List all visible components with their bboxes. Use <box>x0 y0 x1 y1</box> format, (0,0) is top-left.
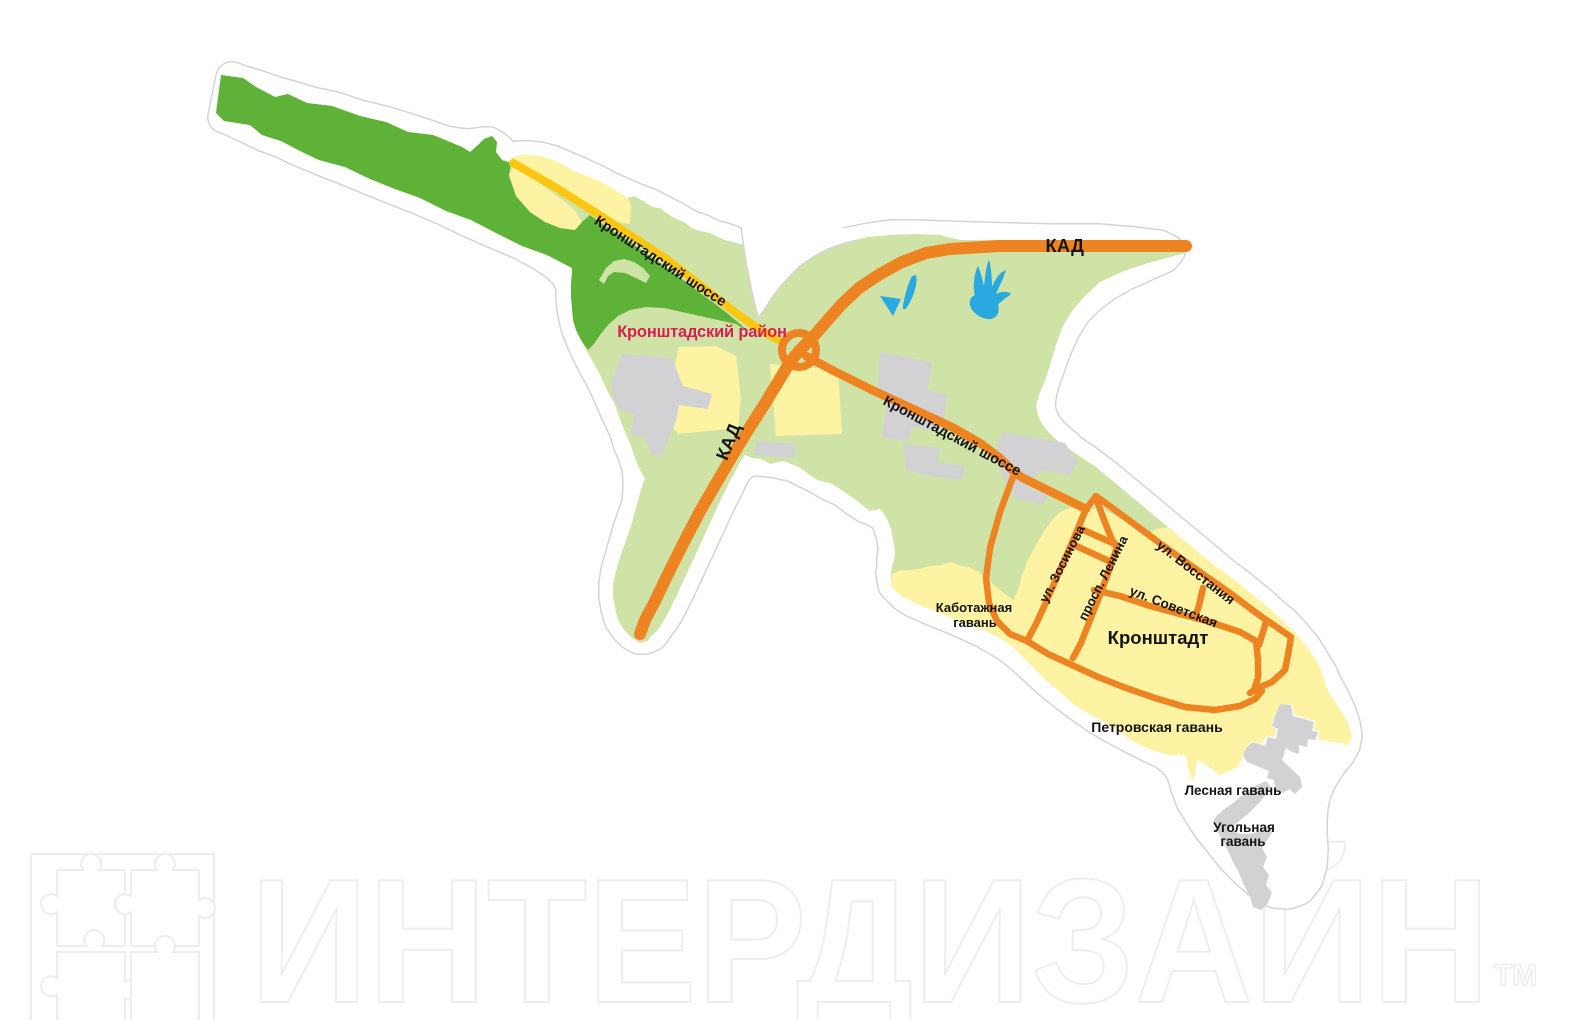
svg-text:Кронштадт: Кронштадт <box>1108 627 1209 648</box>
svg-text:Угольная: Угольная <box>1213 820 1275 835</box>
svg-text:Кронштадский район: Кронштадский район <box>617 323 787 341</box>
svg-text:гавань: гавань <box>953 615 997 630</box>
svg-text:ТМ: ТМ <box>1494 959 1537 992</box>
svg-text:КАД: КАД <box>1046 236 1085 256</box>
svg-text:Каботажная: Каботажная <box>936 600 1012 615</box>
svg-text:Петровская гавань: Петровская гавань <box>1091 719 1223 735</box>
svg-text:гавань: гавань <box>1220 834 1265 849</box>
svg-text:Лесная гавань: Лесная гавань <box>1185 783 1282 798</box>
